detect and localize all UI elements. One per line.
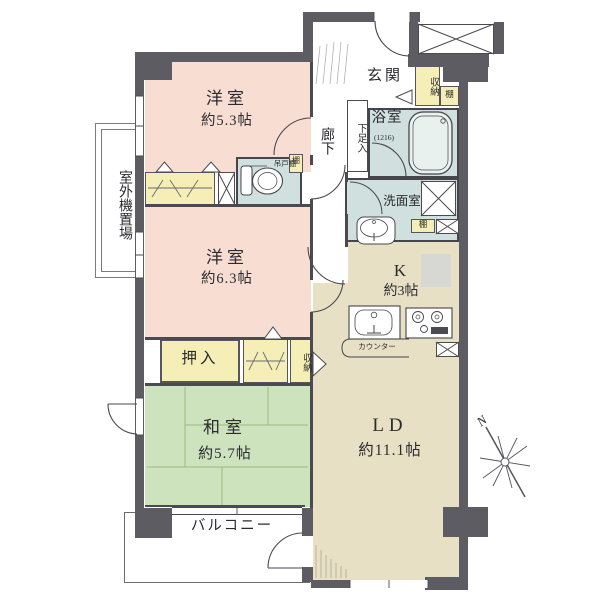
closet-western1 (145, 172, 215, 205)
wall (310, 155, 313, 165)
outdoor-unit-space-label: 室外機置場 (107, 155, 131, 255)
window (136, 398, 143, 435)
entrance-door-gap (374, 12, 410, 22)
room-area-kitchen: 約3帖 (370, 284, 432, 299)
bathroom-size-label: (1216) (362, 134, 406, 142)
wall (310, 312, 313, 508)
pillar (443, 507, 488, 537)
wall (310, 62, 313, 117)
wall (459, 80, 468, 508)
room-area-japanese: 約5.7帖 (165, 446, 285, 463)
window (136, 96, 143, 156)
futon-closet-label: 押入 (165, 350, 235, 367)
hanging-cupboard-label: 吊戸棚 (268, 160, 302, 168)
compass-icon (480, 427, 530, 497)
shelf-entrance-label: 棚 (441, 90, 458, 99)
wall (302, 508, 313, 536)
entrance-label: 玄関 (358, 68, 412, 85)
room-label-ld: LD (352, 416, 428, 437)
room-label-japanese: 和室 (180, 419, 270, 438)
closet-japanese-label: 収納 (293, 347, 310, 377)
wall (145, 337, 312, 340)
wall (494, 22, 504, 54)
closet-western2 (243, 339, 288, 383)
compass-north-label: N (470, 409, 495, 433)
window-swing-japanese (108, 404, 137, 434)
closet-entrance-label: 収納 (418, 69, 437, 104)
wall (135, 508, 172, 538)
room-area-western2: 約6.3帖 (167, 272, 287, 288)
washroom-label: 洗面室 (371, 195, 433, 209)
shelf-washroom-label: 棚 (412, 220, 434, 229)
balcony-label: バルコニー (172, 519, 292, 535)
ps-niche-washroom (436, 219, 459, 234)
window (136, 232, 143, 278)
wall (302, 567, 313, 582)
wall (145, 204, 311, 207)
wall (345, 172, 348, 182)
wall (345, 214, 348, 247)
room-area-western1: 約5.3帖 (167, 114, 287, 130)
fridge-space (421, 254, 451, 287)
wall (459, 537, 468, 582)
room-area-ld: 約11.1帖 (336, 442, 444, 459)
bathroom-label: 浴室 (364, 111, 410, 127)
balcony-door-gap (302, 536, 313, 567)
wall (310, 199, 313, 280)
room-label-kitchen: K (386, 262, 414, 281)
floor-plan: 洋室 約5.3帖 洋室 約6.3帖 和室 約5.7帖 LD 約11.1帖 K 約… (0, 0, 600, 600)
wall (303, 12, 313, 62)
counter-label: カウンター (350, 343, 404, 351)
window (350, 580, 428, 588)
ps-niche-kitchen (436, 342, 459, 357)
pipe-space-box (218, 172, 235, 205)
window (172, 507, 302, 515)
door-arc-entrance (375, 21, 410, 56)
room-ld-left (313, 283, 348, 580)
room-label-western1: 洋室 (182, 90, 272, 109)
wall (443, 54, 488, 82)
door-arc-hall-ld (308, 247, 345, 284)
room-label-western2: 洋室 (182, 249, 272, 268)
wall (145, 383, 312, 386)
entrance-floor-hatch (316, 42, 348, 84)
door-arc-toilet (311, 165, 345, 199)
shaft-box (418, 24, 494, 54)
hallway-label: 廊下 (315, 119, 333, 163)
